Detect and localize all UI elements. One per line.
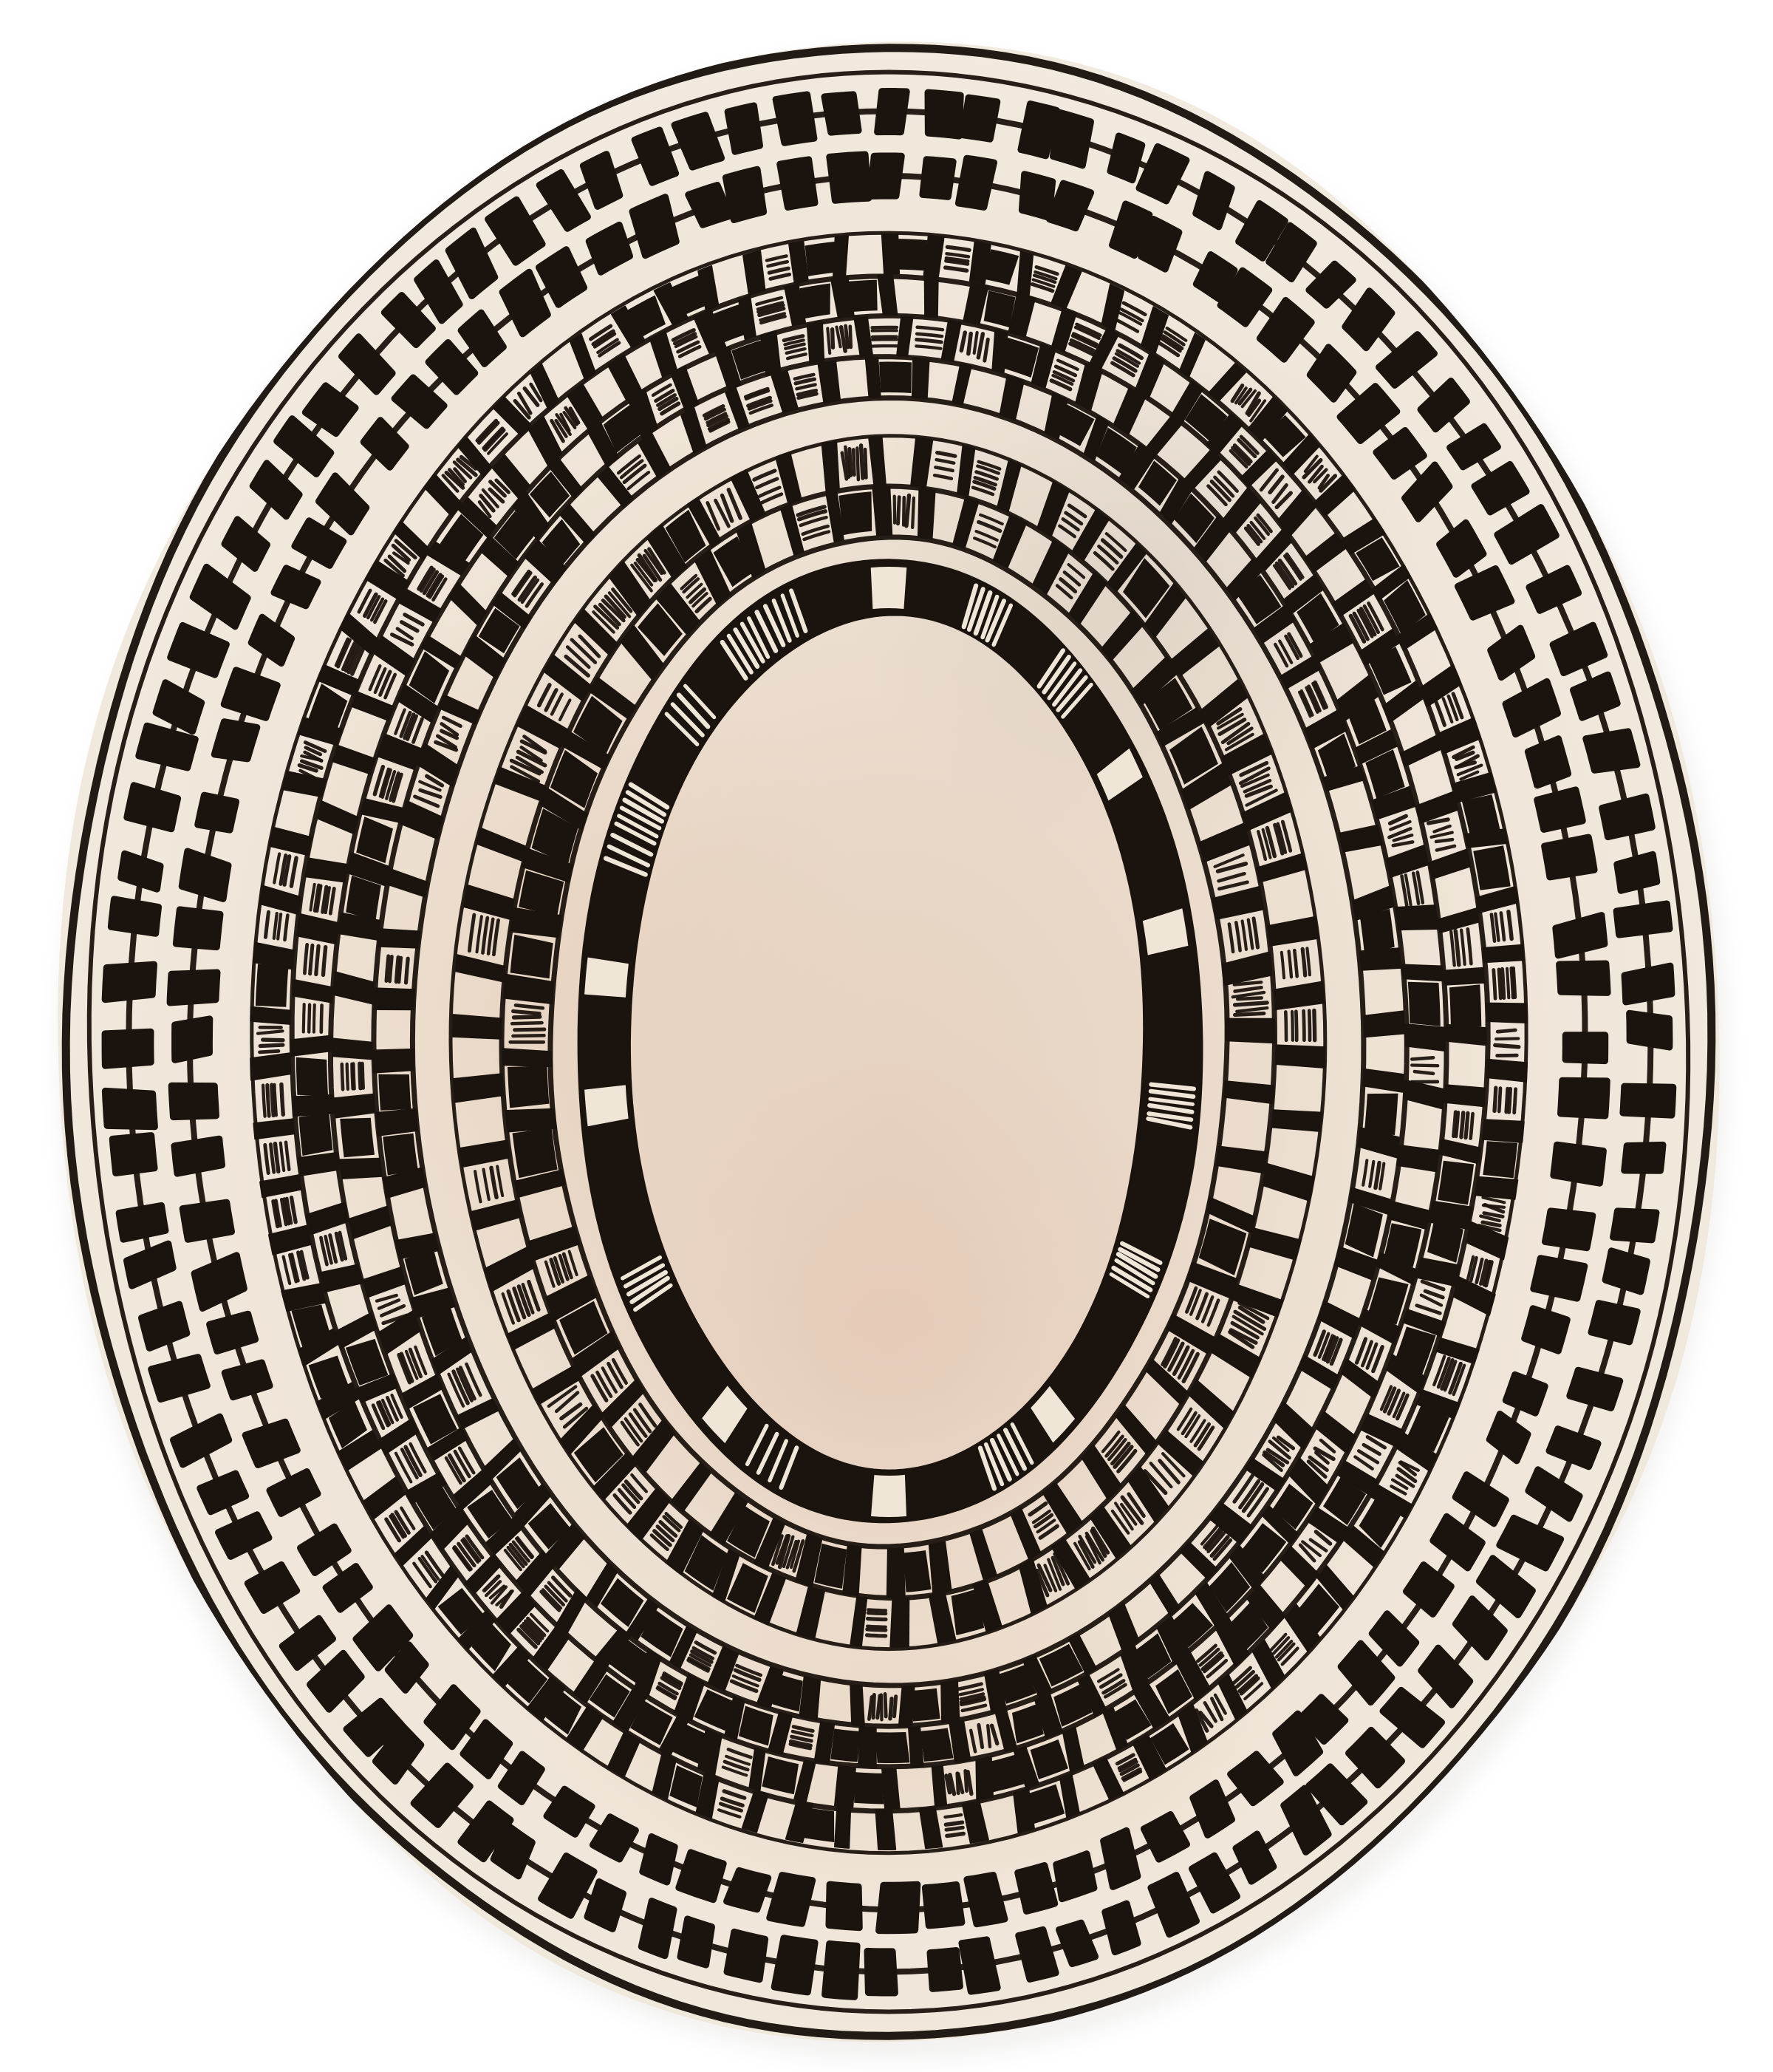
- ring-window: [584, 958, 629, 998]
- photo-page: [0, 0, 1773, 2072]
- ring-window: [871, 567, 907, 609]
- rug-photo: [0, 0, 1773, 2072]
- ring-window: [871, 1475, 906, 1517]
- rug-svg: [0, 0, 1773, 2072]
- rug-canvas: [0, 0, 1773, 2072]
